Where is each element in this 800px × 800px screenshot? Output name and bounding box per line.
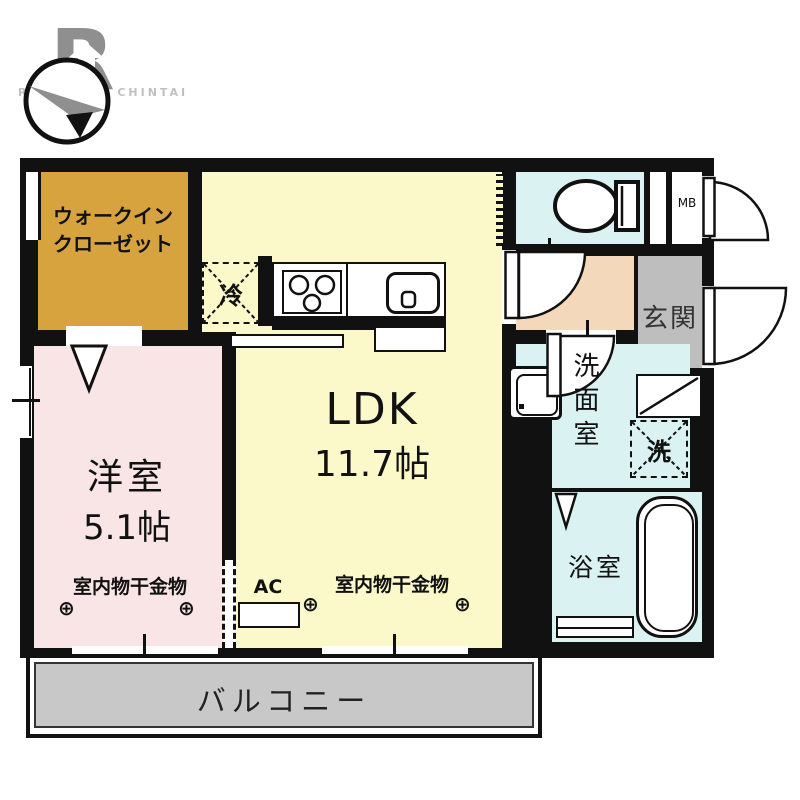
stove-icon — [282, 270, 342, 314]
window-left-frame — [29, 368, 31, 436]
washroom-label: 洗面室 — [566, 352, 603, 454]
walkin-closet-line1: ウォークイン — [38, 202, 188, 230]
ldk-name: LDK — [252, 384, 492, 435]
hatched-wall — [496, 174, 503, 246]
ldk-size: 11.7帖 — [252, 435, 492, 487]
refrigerator-space-icon: 冷 — [202, 262, 260, 324]
hallway — [516, 256, 634, 330]
hanging-anchor-icon: ⊕ — [302, 592, 319, 616]
washer-space-icon: 洗 — [630, 420, 688, 478]
door-entrance — [704, 288, 787, 364]
shoe-cabinet-icon — [636, 374, 702, 418]
washbasin-bowl — [516, 374, 558, 416]
floorplan-page: { "branding": { "watermark": "RAKURAKU C… — [0, 0, 800, 800]
hanging-anchor-icon: ⊕ — [178, 596, 195, 620]
refrigerator-label: 冷 — [204, 264, 258, 322]
ac-sleeve — [238, 602, 300, 628]
ac-label: AC — [238, 576, 298, 598]
room-toilet — [516, 172, 644, 244]
door-stop-tick — [548, 238, 551, 258]
hanging-anchor-icon: ⊕ — [454, 592, 471, 616]
counter-divider — [346, 264, 348, 316]
bathtub-rim — [644, 504, 694, 632]
bathroom-ledge-line — [558, 627, 632, 629]
genkan-label: 玄関 — [636, 298, 704, 335]
bathroom-ledge — [556, 616, 634, 638]
western-room-size: 5.1帖 — [37, 500, 217, 549]
ldk-label: LDK 11.7帖 — [252, 384, 492, 487]
washroom-door-gap — [546, 330, 616, 344]
balcony-label: バルコニー — [34, 678, 534, 720]
western-room-name: 洋室 — [37, 448, 217, 500]
counter-front — [230, 334, 344, 348]
hanging-hardware-label-left: 室内物干金物 — [40, 572, 220, 599]
bathroom-label: 浴室 — [552, 548, 640, 584]
western-room-label: 洋室 5.1帖 — [37, 448, 217, 549]
window-left-tick — [12, 399, 40, 402]
walkin-closet-line2: クローゼット — [38, 230, 188, 258]
sink-icon — [386, 272, 440, 314]
room-boundary-dashed — [222, 560, 236, 648]
meter-box: MB — [672, 172, 702, 244]
logo-letter: R — [50, 18, 115, 102]
washbasin-icon — [508, 366, 562, 420]
door-stop-tick — [586, 320, 589, 342]
kitchen-wall-stub — [258, 256, 272, 326]
hanging-anchor-icon: ⊕ — [58, 596, 75, 620]
mb-door-gap — [702, 176, 714, 238]
window-tick — [143, 634, 146, 648]
pipe-space — [650, 172, 666, 244]
bathtub-icon — [636, 496, 698, 638]
washbasin-drain — [519, 404, 524, 409]
window-tick — [393, 634, 396, 648]
washer-label: 洗 — [632, 422, 686, 476]
counter-return — [374, 326, 446, 352]
ldk-hall-door-gap — [502, 250, 516, 324]
walkin-closet-label: ウォークイン クローゼット — [38, 202, 188, 258]
closet-opening — [66, 326, 142, 346]
